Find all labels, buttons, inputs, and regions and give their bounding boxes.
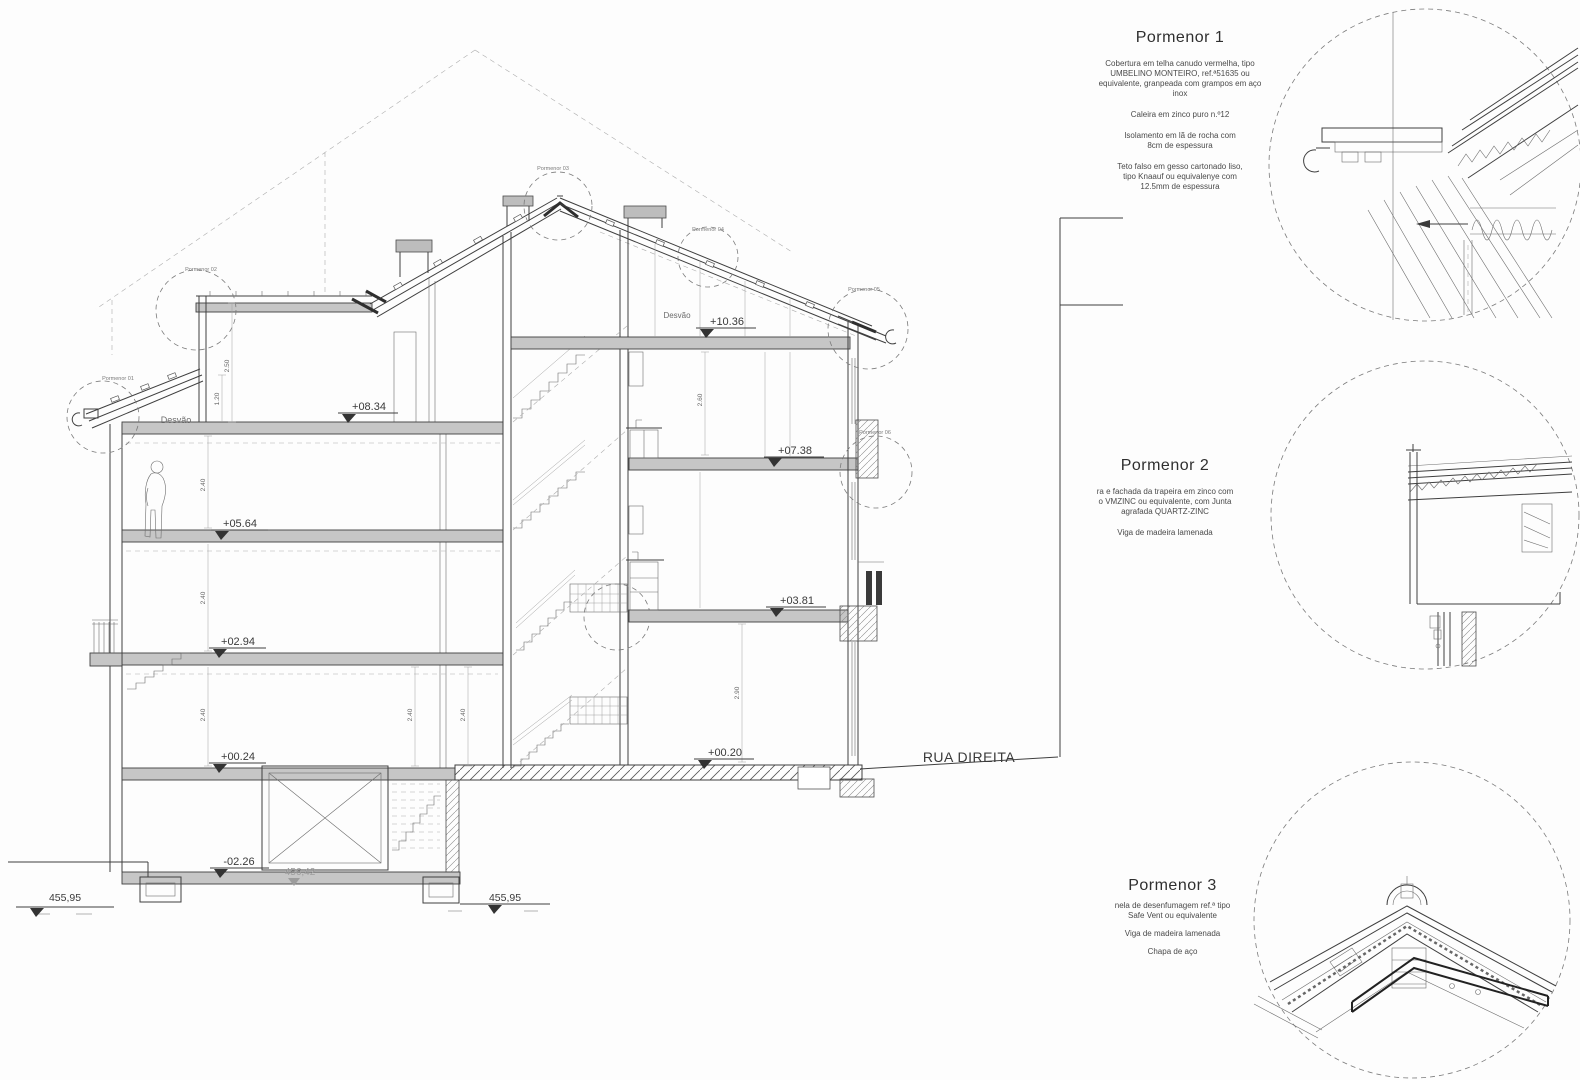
attic-label-left: Desvão [161,415,192,425]
level-basement: -02.26 [223,856,254,868]
pormenor-3-title: Pormenor 3 [1075,878,1270,894]
datum-center: 455,95 [489,892,521,904]
detail-drawing-2 [1271,361,1579,669]
human-figure [145,461,166,538]
left-building-roof [72,196,896,428]
dim-240-b: 2.40 [200,591,207,604]
pormenor-1-title: Pormenor 1 [1085,30,1275,46]
right-building-structure [455,244,884,797]
pormenor-3-paragraph: Viga de madeira lamenada [1075,929,1270,939]
detail-drawing-3 [1254,762,1570,1078]
pormenor-1-paragraph: Caleira em zinco puro n.º12 [1085,110,1275,120]
street-label: RUA DIREITA [923,749,1016,765]
pormenor-3-paragraph: Chapa de aço [1075,947,1270,957]
dim-290: 2.90 [734,686,741,699]
dim-240-a: 2.40 [200,478,207,491]
datum-left: 455,95 [49,892,81,904]
tag-pormenor-05: Pormenor 05 [848,287,880,293]
pormenor-1-note: Pormenor 1 Cobertura em telha canudo ver… [1085,30,1275,203]
level-1st-left: +02.94 [221,636,255,648]
level-3rd-right: +07.38 [778,445,812,457]
dim-240-c: 2.40 [200,708,207,721]
datum-buried: 456,42 [285,867,316,878]
level-markers: +08.34 +05.64 +02.94 +00.24 -02.26 +10.3… [209,316,826,878]
dim-260: 2.60 [697,393,704,406]
tag-pormenor-01: Pormenor 01 [102,376,134,382]
dim-240-d: 2.40 [407,708,414,721]
pormenor-2-note: Pormenor 2 ra e fachada da trapeira em z… [1070,458,1260,549]
level-2nd-right: +03.81 [780,595,814,607]
pormenor-2-paragraph: ra e fachada da trapeira em zinco com o … [1070,487,1260,517]
detail-drawing-1 [1269,9,1580,321]
tag-pormenor-02: Pormenor 02 [185,267,217,273]
dim-250: 2.50 [224,359,231,372]
level-ground-right: +00.20 [708,747,742,759]
stair-core [503,230,650,768]
attic-label-right: Desvão [663,311,691,320]
pormenor-1-paragraph: Isolamento em lã de rocha com 8cm de esp… [1085,131,1275,151]
architectural-sheet: +08.34 +05.64 +02.94 +00.24 -02.26 +10.3… [0,0,1580,1080]
level-attic-right: +10.36 [710,316,744,328]
pormenor-2-title: Pormenor 2 [1070,458,1260,474]
tag-pormenor-04: Pormenor 04 [692,227,724,233]
section-drawing: +08.34 +05.64 +02.94 +00.24 -02.26 +10.3… [0,0,1580,1080]
pormenor-2-paragraph: Viga de madeira lamenada [1070,528,1260,538]
tag-pormenor-03: Pormenor 03 [537,166,569,172]
tag-pormenor-06: Pormenor 06 [859,430,891,436]
pormenor-1-paragraph: Teto falso em gesso cartonado liso, tipo… [1085,162,1275,192]
level-attic-left: +08.34 [352,401,386,413]
pormenor-1-paragraph: Cobertura em telha canudo vermelha, tipo… [1085,59,1275,99]
pormenor-3-paragraph: nela de desenfumagem ref.ª tipo Safe Ven… [1075,901,1270,921]
level-ground-left: +00.24 [221,751,255,763]
dim-240-e: 2.40 [460,708,467,721]
dim-120: 1.20 [214,392,221,405]
left-building-structure [8,278,503,903]
level-2nd-left: +05.64 [223,518,257,530]
pormenor-3-note: Pormenor 3 nela de desenfumagem ref.ª ti… [1075,878,1270,965]
